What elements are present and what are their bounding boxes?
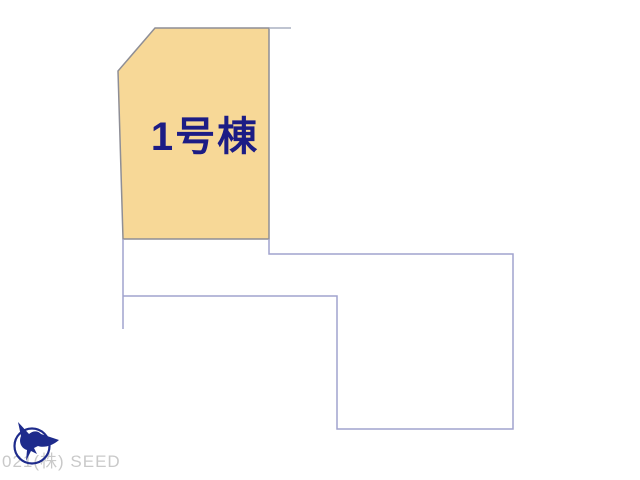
- parcel-boundary-path: [123, 239, 513, 429]
- site-plan: 1号棟 021(株) SEED: [0, 0, 640, 480]
- seed-bird-logo-icon: [6, 419, 62, 471]
- lot-1-label: 1号棟: [143, 117, 267, 157]
- logo-bird-silhouette: [18, 422, 59, 461]
- site-plan-canvas: [0, 0, 640, 480]
